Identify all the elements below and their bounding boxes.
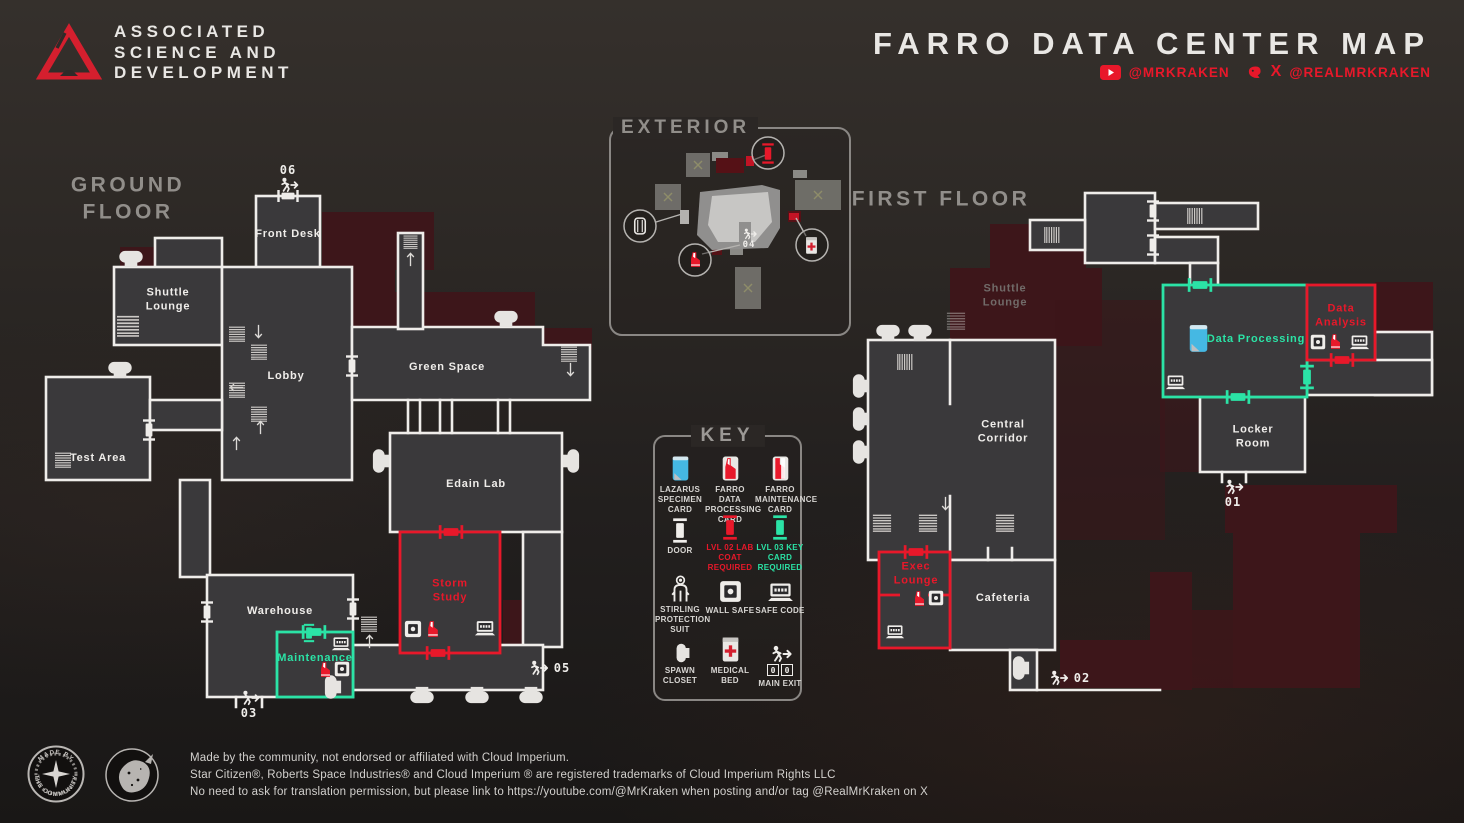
corridor-right [523, 532, 562, 647]
corridor-test-lobby [150, 400, 222, 430]
wall-safe-icon [1311, 335, 1325, 349]
disclaimer-line-3: No need to ask for translation permissio… [190, 784, 928, 801]
stirling-protection-suit-icon [670, 575, 691, 602]
runner-icon [740, 228, 758, 240]
made-by-community-badge: MADE BY THE COMMUNITY [26, 744, 86, 804]
runner-icon [1046, 670, 1070, 686]
safe-code-icon [886, 625, 904, 638]
safe-code-icon [767, 575, 794, 603]
lazarus-specimen-card-icon [671, 455, 690, 482]
room-label-warehouse: Warehouse [247, 604, 313, 618]
farro-map-poster: ASSOCIATED SCIENCE AND DEVELOPMENT FARRO… [0, 0, 1464, 823]
room-label-edain-lab: Edain Lab [446, 477, 506, 491]
key-item-lvl03-door: LVL 03 KEY CARD REQUIRED [755, 515, 805, 571]
exterior-inset [610, 128, 850, 335]
key-item-lvl02-door: LVL 02 LAB COAT REQUIRED [705, 515, 755, 571]
room-label-lobby: Lobby [268, 369, 305, 383]
exit-05-number: 05 [554, 661, 570, 675]
exterior-heading: EXTERIOR [613, 117, 758, 139]
farro-data-processing-card-icon [721, 455, 740, 482]
key-item-medical-bed: MEDICAL BED [705, 635, 755, 691]
right-corridor-b [1307, 360, 1432, 395]
room-shuttle-annex [155, 238, 222, 268]
key-panel: KEY LAZARUS SPECIMEN CARD FARRO DATA PRO… [653, 435, 802, 701]
room-label-green-space: Green Space [409, 360, 485, 374]
key-item-farro-maintenance-card: FARRO MAINTENANCE CARD [755, 455, 805, 511]
exit-06: 06 [276, 163, 300, 193]
room-central-corridor [868, 340, 1055, 560]
key-title: KEY [690, 425, 764, 447]
spawn-closet-icon [670, 635, 690, 663]
door-icon [672, 515, 688, 543]
room-label-data-processing: Data Processing [1206, 332, 1306, 346]
key-grid: LAZARUS SPECIMEN CARD FARRO DATA PROCESS… [655, 455, 800, 691]
key-item-spawn-closet: SPAWN CLOSET [655, 635, 705, 691]
lvl03-door-icon [772, 515, 788, 540]
room-label-central-corridor: Central Corridor [958, 418, 1048, 447]
exit-01-number: 01 [1225, 495, 1241, 509]
corridor-lobby-warehouse [180, 480, 210, 577]
safe-code-icon [475, 621, 495, 635]
lazarus-card-icon [1190, 325, 1208, 352]
wall-safe-icon [719, 575, 742, 603]
safe-code-icon [1166, 376, 1185, 390]
runner-icon [1221, 479, 1245, 495]
runner-icon [276, 177, 300, 193]
key-item-wall-safe: WALL SAFE [705, 575, 755, 631]
farro-maintenance-card-icon [771, 455, 790, 482]
wing-corridor-b [1155, 237, 1218, 263]
exit-05: 05 [526, 660, 570, 676]
main-exit-code: 0 0 [767, 664, 793, 676]
wall-safe-icon [405, 621, 421, 637]
key-item-safe-code: SAFE CODE [755, 575, 805, 631]
disclaimer-text: Made by the community, not endorsed or a… [190, 750, 928, 801]
exit-06-number: 06 [280, 163, 296, 177]
exit-02: 02 [1046, 670, 1090, 686]
room-wing [1085, 193, 1155, 263]
exit-03: 03 [237, 690, 261, 720]
ground-floor-heading: GROUND FLOOR [33, 172, 223, 227]
wing-corridor-a [1155, 203, 1258, 229]
room-label-shuttle-lounge-1: Shuttle Lounge [965, 282, 1045, 311]
key-item-farro-data-processing-card: FARRO DATA PROCESSING CARD [705, 455, 755, 511]
runner-icon [526, 660, 550, 676]
exit-02-number: 02 [1074, 671, 1090, 685]
room-label-shuttle-lounge-g: Shuttle Lounge [128, 286, 208, 315]
room-label-maintenance: Maintenance [277, 651, 352, 665]
kraken-badge [104, 747, 160, 803]
key-item-main-exit: 0 0 MAIN EXIT [755, 635, 805, 691]
exit-04-number: 04 [743, 240, 756, 250]
safe-code-icon [332, 637, 350, 650]
wing-left-stub [1030, 220, 1085, 250]
first-floor-heading: FIRST FLOOR [846, 185, 1036, 212]
medical-bed-icon [721, 635, 740, 663]
exit-01: 01 [1221, 479, 1245, 509]
room-label-test-area: Test Area [68, 451, 128, 465]
exit-04: 04 [740, 228, 758, 250]
stair-chute-green-space [398, 233, 423, 329]
safe-code-icon [1350, 336, 1369, 350]
room-label-data-analysis: Data Analysis [1306, 302, 1376, 331]
room-label-locker-room: Locker Room [1218, 423, 1288, 452]
key-item-lazarus-specimen-card: LAZARUS SPECIMEN CARD [655, 455, 705, 511]
wall-safe-icon [929, 591, 943, 605]
key-item-stirling-protection-suit: STIRLING PROTECTION SUIT [655, 575, 705, 631]
room-label-front-desk: Front Desk [253, 227, 323, 241]
disclaimer-line-2: Star Citizen®, Roberts Space Industries®… [190, 767, 928, 784]
medical-bed-callout-icon [806, 237, 817, 254]
key-item-door: DOOR [655, 515, 705, 571]
lvl02-door-icon [722, 515, 738, 540]
main-exit-icon [766, 635, 794, 663]
room-label-storm-study: Storm Study [415, 577, 485, 606]
room-label-exec-lounge: Exec Lounge [881, 560, 951, 589]
disclaimer-line-1: Made by the community, not endorsed or a… [190, 750, 928, 767]
room-label-cafeteria: Cafeteria [976, 591, 1030, 605]
exit-03-number: 03 [241, 706, 257, 720]
runner-icon [237, 690, 261, 706]
